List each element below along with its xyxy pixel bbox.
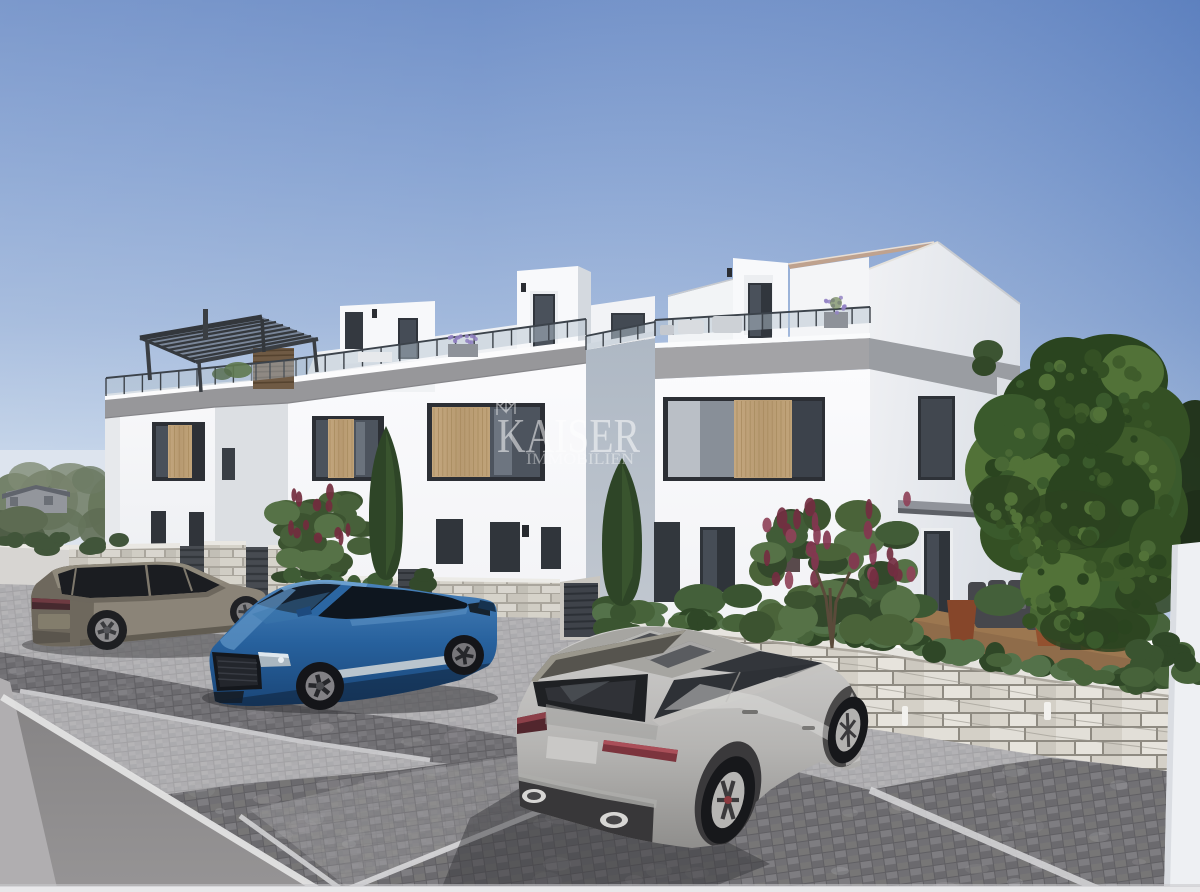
- svg-text:IMMOBILIEN: IMMOBILIEN: [526, 451, 634, 468]
